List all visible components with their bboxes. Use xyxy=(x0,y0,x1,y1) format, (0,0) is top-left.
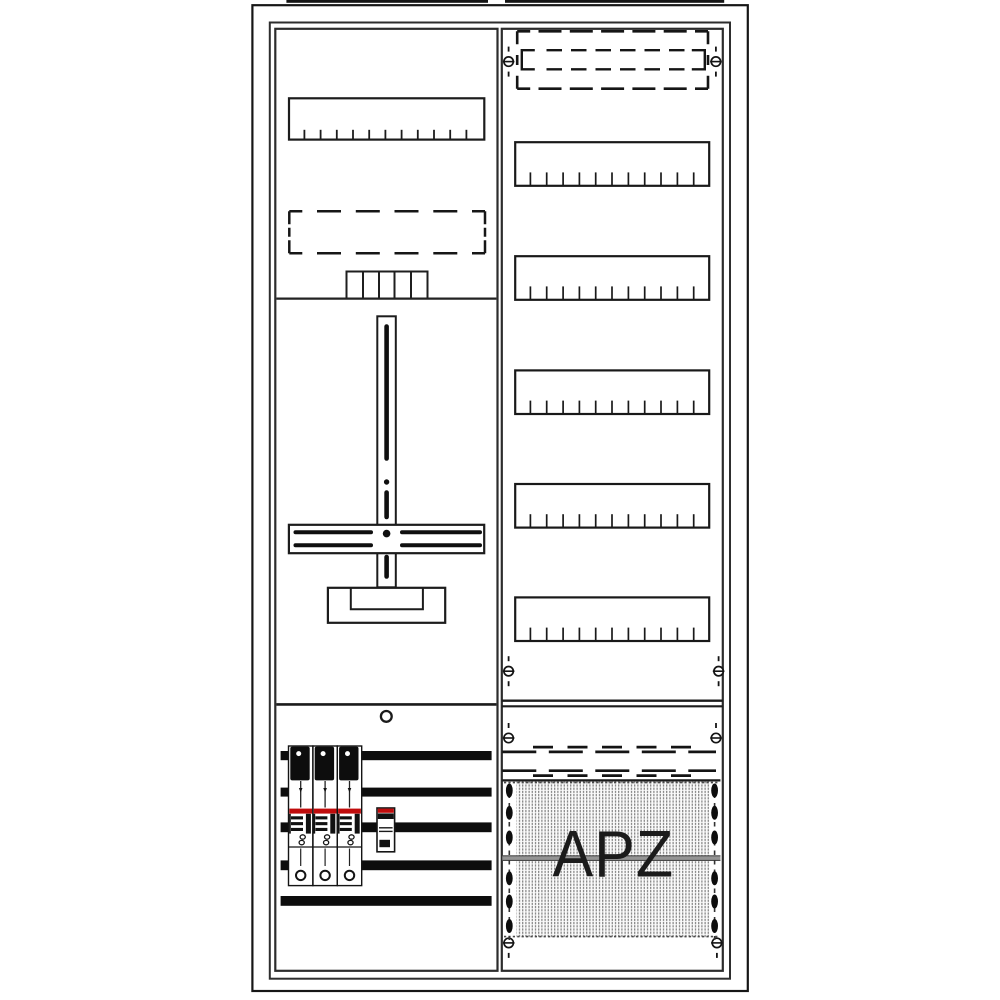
svg-text:APZ: APZ xyxy=(553,819,675,891)
